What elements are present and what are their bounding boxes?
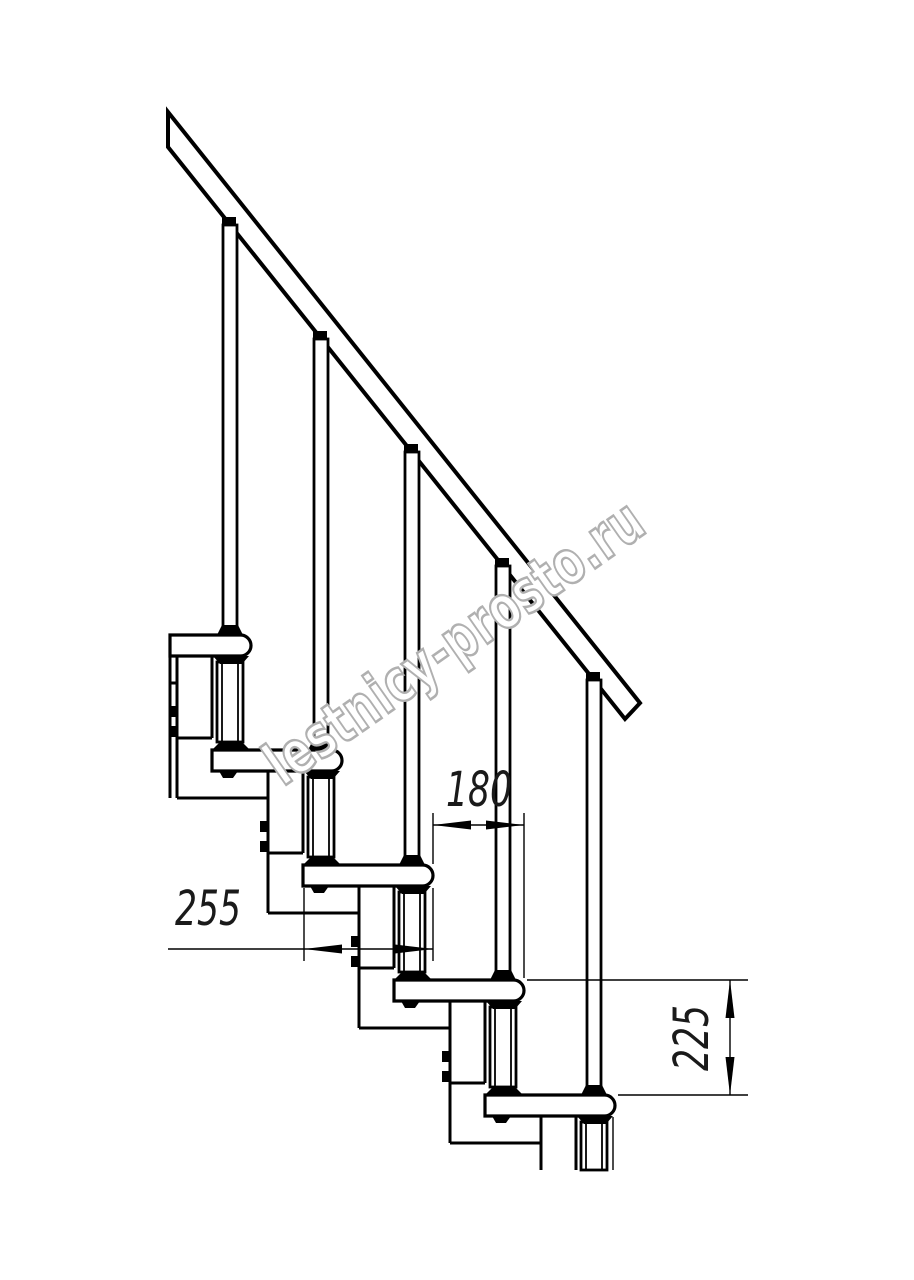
dimension-arrow [304, 945, 342, 954]
bracket-bolt [351, 956, 360, 967]
tread-underside-tab [492, 1116, 511, 1123]
support-post [308, 777, 334, 857]
dimension-label-run: 180 [446, 761, 512, 817]
baluster [587, 680, 601, 1095]
tread [303, 865, 433, 886]
dimension-label-riser: 225 [663, 1005, 719, 1071]
tread [394, 980, 524, 1001]
baluster-base-flange [217, 625, 243, 635]
staircase-drawing-page: 180 255 225 lestnicy-prosto.ru [0, 0, 914, 1280]
baluster [314, 339, 328, 750]
bracket-bolt [260, 841, 269, 852]
dimension-arrow [433, 821, 471, 830]
support-post [399, 892, 425, 972]
dimension-arrow [726, 1057, 735, 1095]
baluster-base-flange [399, 855, 425, 865]
baluster [223, 225, 237, 635]
baluster-base-flange [581, 1085, 607, 1095]
support-post [581, 1122, 607, 1170]
tread-underside-tab [219, 771, 238, 778]
support-post [490, 1007, 516, 1087]
staircase-side-view-drawing: 180 255 225 lestnicy-prosto.ru [0, 0, 914, 1280]
bracket-bolt [351, 936, 360, 947]
baluster-base-flange [490, 970, 516, 980]
tread [485, 1095, 615, 1116]
support-post [217, 662, 243, 742]
dimension-labels: 180 255 225 [175, 761, 719, 1071]
bracket-bolt [442, 1071, 451, 1082]
bracket-bolt [442, 1051, 451, 1062]
tread-underside-tab [310, 886, 329, 893]
tread [170, 635, 251, 656]
dimension-label-depth: 255 [175, 880, 241, 936]
tread-underside-tab [401, 1001, 420, 1008]
bracket-bolt [260, 821, 269, 832]
dimension-arrow [726, 980, 735, 1018]
